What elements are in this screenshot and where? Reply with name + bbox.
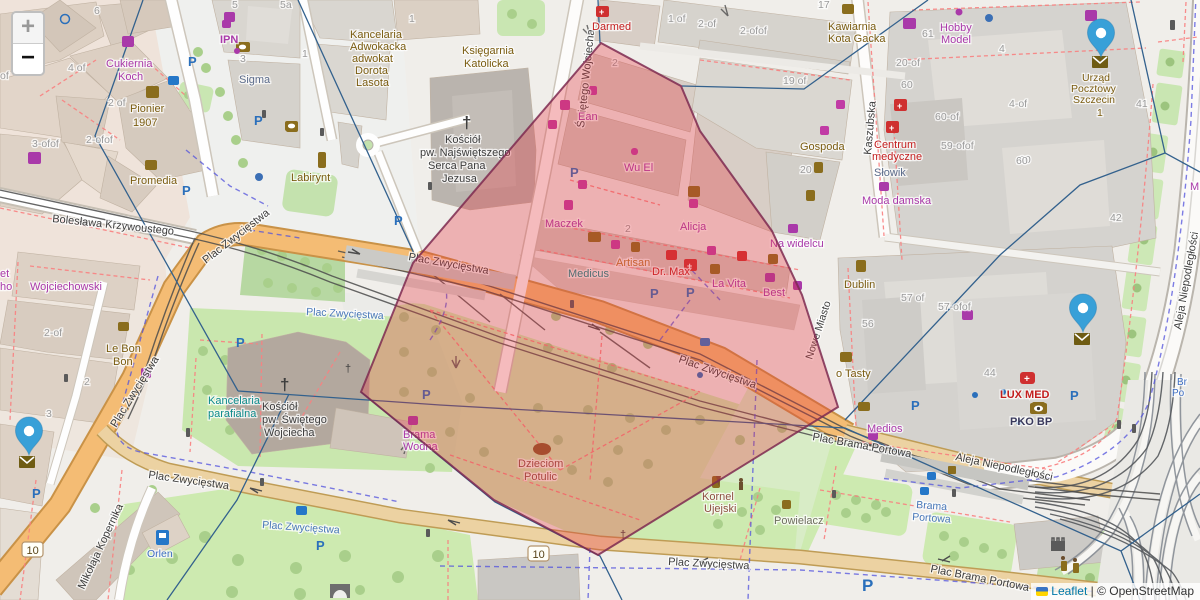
svg-text:Jezusa: Jezusa [442, 173, 478, 185]
svg-text:42: 42 [1110, 212, 1122, 224]
svg-text:Księgarnia: Księgarnia [462, 45, 515, 57]
svg-text:adwokat: adwokat [352, 53, 393, 65]
svg-text:P: P [254, 113, 263, 128]
svg-text:Dublin: Dublin [844, 279, 875, 291]
svg-text:P: P [1070, 388, 1079, 403]
svg-text:60: 60 [1016, 155, 1028, 167]
svg-text:Moda damska: Moda damska [862, 195, 932, 207]
svg-text:1: 1 [409, 13, 415, 25]
svg-text:17: 17 [818, 0, 830, 11]
svg-text:+: + [889, 123, 894, 133]
svg-text:+: + [1024, 374, 1030, 385]
svg-text:P: P [316, 538, 325, 553]
svg-text:Dorota: Dorota [355, 65, 389, 77]
svg-text:medyczne: medyczne [872, 151, 922, 163]
svg-text:Kawiarnia: Kawiarnia [828, 21, 877, 33]
svg-text:Orlen: Orlen [147, 548, 173, 560]
svg-text:Ujejski: Ujejski [704, 503, 736, 515]
svg-text:Po: Po [1172, 388, 1185, 399]
svg-text:+: + [599, 7, 604, 17]
svg-text:ho: ho [0, 281, 12, 293]
svg-text:Cukiernia: Cukiernia [106, 58, 153, 70]
svg-text:20-of: 20-of [896, 57, 920, 69]
svg-text:61: 61 [922, 28, 934, 40]
svg-text:†: † [280, 375, 289, 394]
svg-text:1: 1 [1097, 107, 1103, 119]
svg-text:et: et [0, 268, 9, 280]
svg-text:19 of: 19 of [783, 75, 806, 87]
svg-text:Hobby: Hobby [940, 22, 972, 34]
svg-text:pw. Świętego: pw. Świętego [262, 413, 327, 426]
svg-text:2-ofof: 2-ofof [86, 134, 113, 146]
svg-text:20: 20 [800, 164, 812, 176]
svg-text:+: + [897, 101, 902, 111]
svg-text:Labirynt: Labirynt [291, 172, 330, 184]
svg-text:P: P [862, 576, 873, 595]
svg-text:Wojciecha: Wojciecha [264, 427, 315, 439]
svg-text:Lasota: Lasota [356, 77, 390, 89]
svg-text:2-ofof: 2-ofof [740, 25, 767, 37]
svg-text:Kancelaria: Kancelaria [350, 29, 403, 41]
svg-text:5a: 5a [280, 0, 292, 11]
svg-text:P: P [236, 335, 245, 350]
svg-text:M: M [1190, 181, 1199, 193]
svg-text:P: P [182, 183, 191, 198]
svg-text:57 of: 57 of [901, 292, 924, 304]
svg-text:10: 10 [533, 549, 545, 561]
svg-text:Gospoda: Gospoda [800, 141, 846, 153]
svg-text:Promedia: Promedia [130, 175, 178, 187]
svg-text:Medios: Medios [867, 423, 903, 435]
svg-text:P: P [394, 213, 403, 228]
svg-text:P: P [911, 398, 920, 413]
svg-text:4 of: 4 of [68, 62, 86, 74]
svg-text:Centrum: Centrum [874, 139, 916, 151]
svg-text:Kościół: Kościół [262, 401, 298, 413]
svg-text:Kota Gacka: Kota Gacka [828, 33, 886, 45]
svg-text:3: 3 [46, 408, 52, 420]
svg-text:†: † [462, 113, 471, 132]
svg-text:parafialna: parafialna [208, 408, 257, 420]
svg-text:60-of: 60-of [935, 111, 959, 123]
svg-text:o Tasty: o Tasty [836, 368, 871, 380]
svg-text:Serca Pana: Serca Pana [428, 160, 486, 172]
svg-text:60: 60 [901, 79, 913, 91]
svg-text:Koch: Koch [118, 71, 143, 83]
svg-text:Sigma: Sigma [239, 74, 271, 86]
svg-text:59-ofof: 59-ofof [941, 140, 974, 152]
svg-text:2 of: 2 of [108, 97, 126, 109]
svg-text:2-of: 2-of [44, 327, 62, 339]
svg-text:4-of: 4-of [1009, 98, 1027, 110]
svg-text:1: 1 [302, 48, 308, 60]
svg-text:57-ofof: 57-ofof [938, 301, 971, 313]
svg-text:of: of [0, 70, 9, 82]
svg-text:6: 6 [94, 5, 100, 17]
svg-text:Katolicka: Katolicka [464, 58, 510, 70]
svg-text:Bon: Bon [113, 356, 133, 368]
svg-text:Powielacz: Powielacz [774, 515, 824, 527]
svg-text:Kornel: Kornel [702, 491, 734, 503]
svg-text:Br: Br [1177, 377, 1188, 388]
svg-text:Szczecin: Szczecin [1073, 94, 1115, 106]
svg-text:5: 5 [232, 0, 238, 11]
svg-text:Model: Model [941, 34, 971, 46]
svg-text:P: P [188, 54, 197, 69]
svg-text:2-of: 2-of [698, 18, 716, 30]
svg-text:1 of: 1 of [668, 13, 686, 25]
svg-text:PKO BP: PKO BP [1010, 416, 1052, 428]
svg-text:Kościół: Kościół [445, 134, 481, 146]
svg-text:Słowik: Słowik [874, 167, 906, 179]
svg-text:Kancelaria: Kancelaria [208, 395, 261, 407]
svg-text:2: 2 [84, 376, 90, 388]
svg-text:P: P [32, 486, 41, 501]
svg-text:IPN: IPN [220, 34, 238, 46]
svg-text:3: 3 [240, 53, 246, 65]
svg-text:pw. Najświętszego: pw. Najświętszego [420, 147, 511, 159]
svg-text:1907: 1907 [133, 117, 157, 129]
svg-text:Adwokacka: Adwokacka [350, 41, 407, 53]
svg-text:41: 41 [1136, 98, 1148, 110]
svg-text:†: † [345, 363, 351, 375]
svg-text:10: 10 [27, 545, 39, 557]
svg-text:56: 56 [862, 318, 874, 330]
svg-text:Darmed: Darmed [592, 21, 631, 33]
svg-text:3-ofof: 3-ofof [32, 138, 59, 150]
svg-text:Wojciechowski: Wojciechowski [30, 281, 102, 293]
svg-text:Le Bon: Le Bon [106, 343, 141, 355]
svg-text:44: 44 [984, 367, 996, 379]
svg-text:LUX MED: LUX MED [1000, 389, 1050, 401]
svg-text:Pionier: Pionier [130, 103, 165, 115]
svg-text:4: 4 [999, 43, 1005, 55]
